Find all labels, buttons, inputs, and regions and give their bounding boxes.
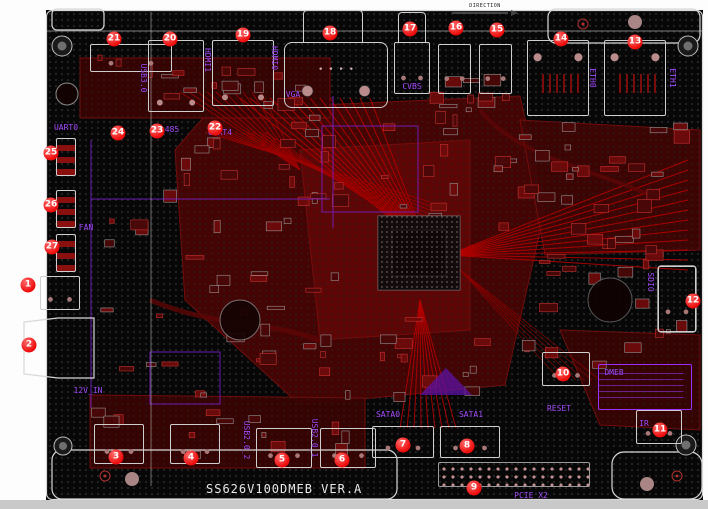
callout-21: 21 — [107, 32, 122, 47]
pcb-board: USB3.0HDMI1HDMI0VGACVBSETH0ETH1UART0485U… — [46, 10, 703, 500]
callout-12: 12 — [686, 294, 701, 309]
desk-edge — [0, 500, 708, 509]
callout-8: 8 — [460, 439, 475, 454]
callout-4: 4 — [184, 451, 199, 466]
callout-17: 17 — [403, 22, 418, 37]
callout-16: 16 — [449, 21, 464, 36]
callout-1: 1 — [21, 278, 36, 293]
callout-10: 10 — [556, 367, 571, 382]
callout-7: 7 — [396, 438, 411, 453]
direction-indicator: DIRECTION — [452, 3, 518, 16]
callout-18: 18 — [323, 26, 338, 41]
callout-27: 27 — [45, 240, 60, 255]
callout-2: 2 — [22, 338, 37, 353]
direction-arrow-icon — [452, 10, 518, 16]
callout-24: 24 — [111, 126, 126, 141]
callout-19: 19 — [236, 28, 251, 43]
callout-15: 15 — [490, 23, 505, 38]
pcb-layout-screenshot: USB3.0HDMI1HDMI0VGACVBSETH0ETH1UART0485U… — [0, 0, 708, 509]
callout-9: 9 — [467, 481, 482, 496]
board-title: SS626V100DMEB VER.A — [206, 482, 386, 496]
callout-14: 14 — [554, 32, 569, 47]
callout-26: 26 — [44, 198, 59, 213]
callout-20: 20 — [163, 32, 178, 47]
callout-5: 5 — [275, 453, 290, 468]
callout-25: 25 — [44, 146, 59, 161]
callout-22: 22 — [208, 121, 223, 136]
callouts-layer: 1234567891011121314151617181920212223242… — [0, 0, 708, 509]
callout-6: 6 — [335, 453, 350, 468]
direction-label: DIRECTION — [452, 3, 518, 9]
callout-3: 3 — [109, 450, 124, 465]
callout-11: 11 — [653, 423, 668, 438]
callout-13: 13 — [628, 35, 643, 50]
callout-23: 23 — [150, 124, 165, 139]
